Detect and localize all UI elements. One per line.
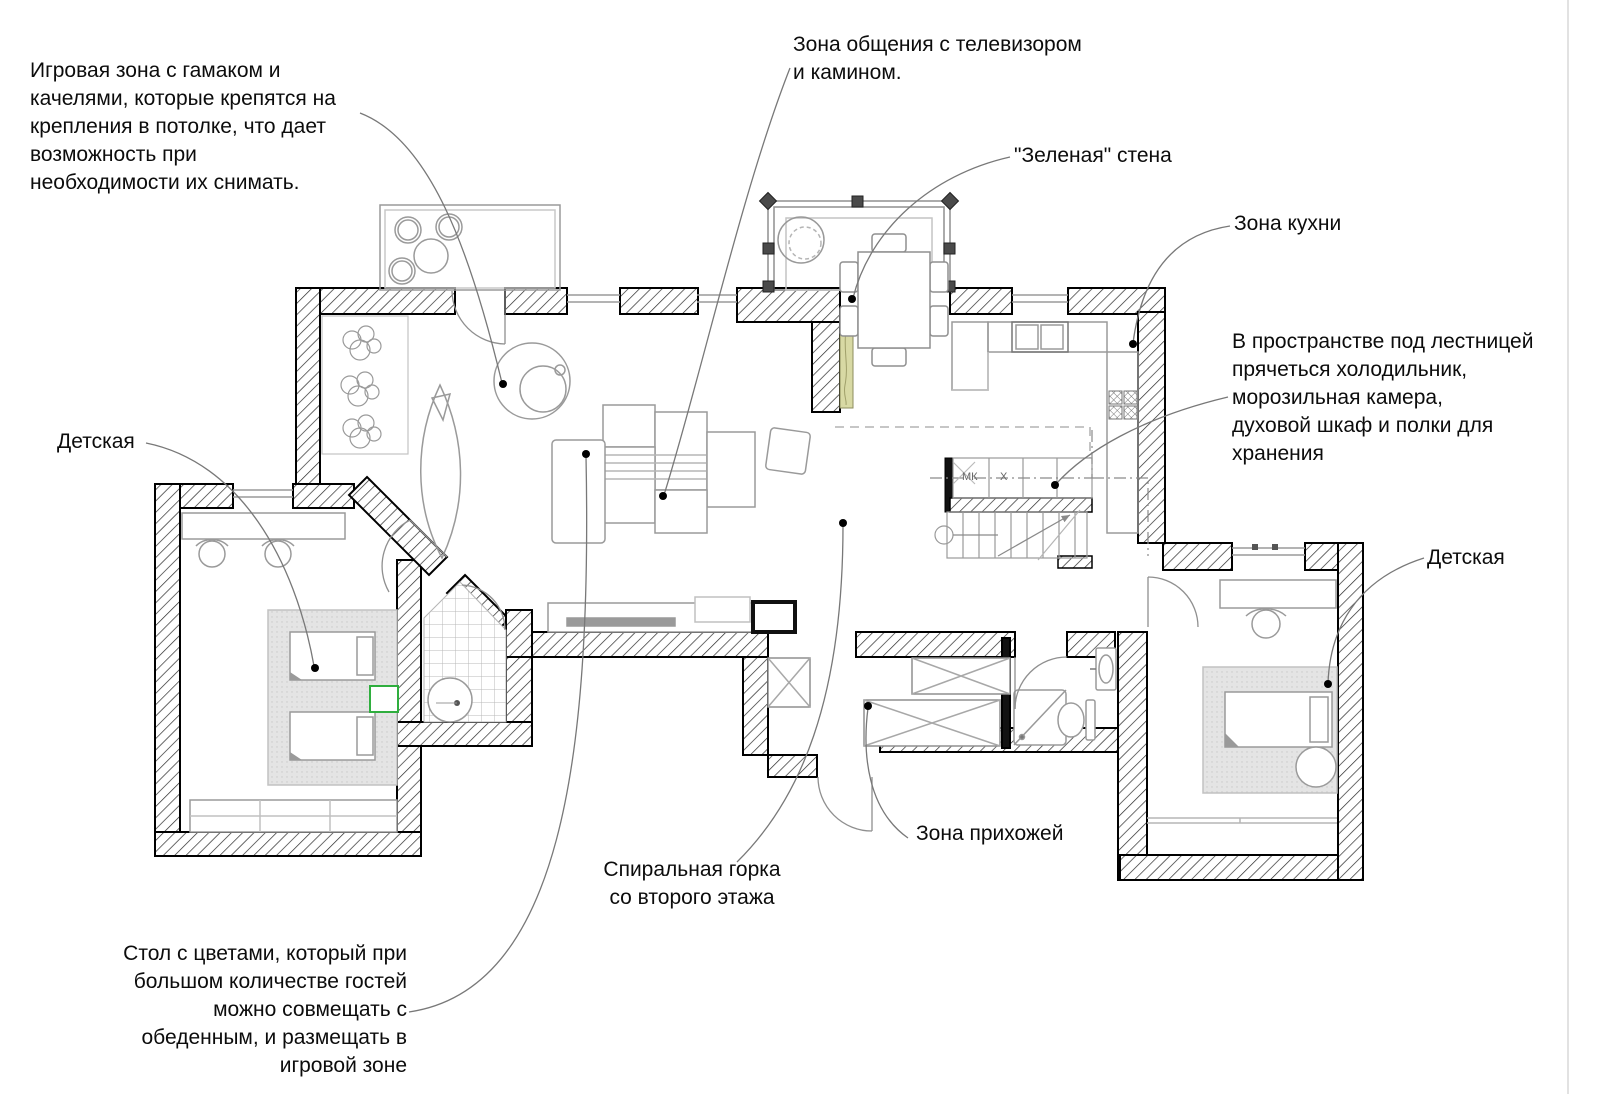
- bed: [290, 632, 375, 680]
- wall-nursery-l-top-b: [293, 484, 354, 508]
- wall-top-3: [620, 288, 698, 314]
- stove: [1109, 391, 1137, 419]
- wall-living-bottom: [532, 632, 768, 657]
- desk: [182, 513, 345, 539]
- kitchen-counter-right: [1107, 352, 1138, 533]
- toilet-icon: [1058, 700, 1095, 740]
- wall-hall-left: [743, 657, 768, 755]
- terrace-table: [414, 239, 448, 273]
- armchair: [765, 427, 810, 474]
- wall-entry-left: [768, 755, 817, 777]
- window-living-1: [567, 295, 620, 302]
- annotation-under-stairs: В пространстве под лестницей прячеться х…: [1232, 328, 1562, 468]
- wall-bedroom-bottom: [1120, 855, 1338, 880]
- kitchen-counter-top: [988, 322, 1107, 352]
- tv-icon: [567, 618, 675, 626]
- annotation-spiral-slide: Спиральная горка со второго этажа: [597, 856, 787, 912]
- door-entrance: [818, 777, 872, 831]
- wall-green-column: [812, 322, 840, 412]
- annotation-hallway-zone: Зона прихожей: [916, 820, 1096, 848]
- window-kitchen: [1012, 295, 1068, 302]
- wall-top-4: [737, 288, 840, 322]
- walls: [155, 288, 1363, 880]
- hammock-icon: [421, 385, 461, 558]
- window-bedroom-right: [1232, 544, 1305, 555]
- open-plan-dashed-boundary: [835, 427, 1090, 458]
- hall-wardrobe: [768, 658, 810, 707]
- dining-table: [858, 252, 930, 348]
- dining-chair: [840, 306, 858, 336]
- wall-living-left: [296, 288, 320, 508]
- nursery-right-room: [1147, 580, 1337, 823]
- label-fridge: X: [1000, 471, 1008, 483]
- kitchen-tall-unit: [952, 322, 988, 390]
- wall-nursery-l-left: [155, 484, 180, 856]
- stairs: [935, 510, 1087, 560]
- wall-nursery-l-right: [397, 560, 421, 832]
- pillow: [357, 637, 373, 675]
- bed: [1225, 692, 1332, 747]
- wardrobe: [190, 800, 397, 832]
- pillow: [1310, 697, 1328, 742]
- pillow: [357, 717, 373, 755]
- wall-bath1-right-top: [506, 610, 532, 657]
- kitchen-sink: [1012, 322, 1068, 352]
- terrace: [380, 205, 560, 290]
- hall-wardrobe: [912, 658, 1010, 694]
- fireplace-icon: [753, 602, 795, 632]
- wall-top-6: [1068, 288, 1165, 314]
- wall-bedroom-left: [1118, 632, 1147, 880]
- console: [695, 597, 750, 622]
- kitchen-counter-lines: [952, 352, 988, 390]
- door-bedroom-right: [1148, 577, 1198, 627]
- plant-icon: [341, 372, 379, 406]
- stairs-block: МК X: [930, 430, 1148, 560]
- wall-bath1-bottom: [397, 722, 532, 746]
- wall-kitchen-right: [1138, 312, 1165, 543]
- wall-top-2: [505, 288, 567, 314]
- window-nursery-left: [233, 490, 293, 497]
- annotation-tv-zone: Зона общения с телевизором и камином.: [793, 31, 1113, 87]
- stair-start-icon: [935, 526, 953, 544]
- wall-shower-top-a: [856, 632, 1015, 657]
- green-nightstand: [370, 686, 398, 712]
- dining-chair: [930, 262, 948, 292]
- annotation-flower-table: Стол с цветами, который при большом коли…: [95, 940, 407, 1080]
- pouf: [1296, 747, 1336, 787]
- plant-icon: [778, 217, 824, 263]
- wall-bedroom-right: [1338, 543, 1363, 880]
- annotation-nursery-left: Детская: [57, 428, 177, 456]
- hallway: [768, 658, 1010, 746]
- annotation-play-zone: Игровая зона с гамаком и качелями, котор…: [30, 57, 370, 197]
- wall-bedroom-top-a: [1163, 543, 1232, 570]
- annotation-nursery-right: Детская: [1427, 544, 1547, 572]
- leader-play-zone: [360, 113, 502, 383]
- plant-inner-icon: [789, 227, 821, 259]
- nursery-left-room: [182, 513, 398, 832]
- floor-plan-page: МК X: [0, 0, 1600, 1094]
- flower-table: [552, 440, 605, 543]
- wardrobe-lines: [1147, 818, 1337, 823]
- plants-strip: [322, 316, 408, 454]
- dining-chair: [930, 306, 948, 336]
- plant-icon: [343, 415, 381, 448]
- plant-icon: [343, 326, 381, 360]
- hall-wardrobe: [864, 700, 1000, 746]
- desk: [1220, 580, 1336, 608]
- wall-nursery-l-bottom: [155, 832, 421, 856]
- wall-top-5: [950, 288, 1012, 314]
- annotation-green-wall: "Зеленая" стена: [1014, 142, 1234, 170]
- plants-box: [322, 316, 408, 454]
- terrace-chairs: [389, 214, 462, 284]
- wall-understair-bottom: [950, 498, 1092, 512]
- wall-bedroom-top-b: [1305, 543, 1338, 570]
- washing-machine-icon: [428, 678, 472, 722]
- desk-chair: [196, 540, 294, 567]
- dining-chair: [872, 348, 906, 366]
- window-living-2: [697, 295, 737, 302]
- sofa: [603, 405, 755, 533]
- annotation-kitchen-zone: Зона кухни: [1234, 210, 1414, 238]
- green-wall: [840, 326, 853, 408]
- label-freezer: МК: [962, 471, 978, 483]
- desk-chair: [1246, 609, 1286, 638]
- bed: [290, 712, 375, 760]
